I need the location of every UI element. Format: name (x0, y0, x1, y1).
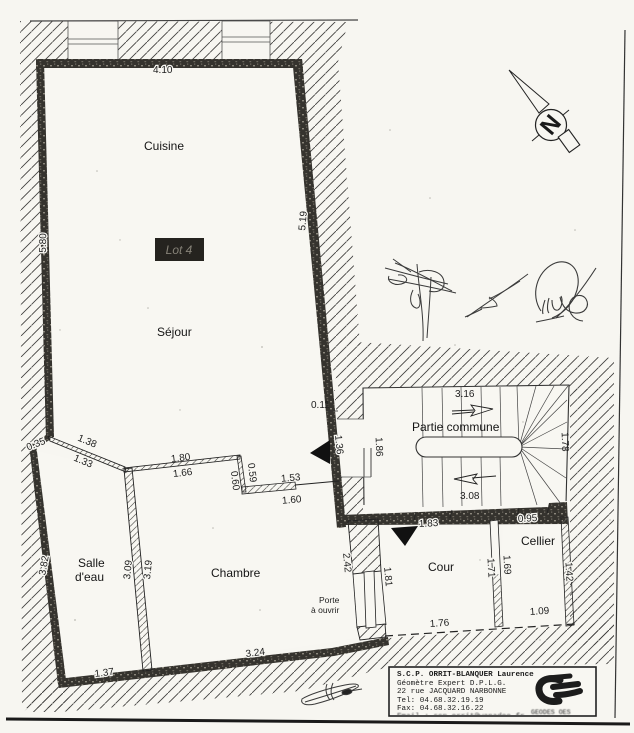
svg-text:1.83: 1.83 (419, 518, 439, 530)
svg-text:Cour: Cour (428, 560, 454, 574)
svg-text:1.09: 1.09 (529, 606, 550, 618)
svg-text:Porte: Porte (319, 595, 340, 605)
svg-text:d'eau: d'eau (75, 570, 104, 584)
svg-text:1.86: 1.86 (373, 437, 385, 457)
svg-text:3.08: 3.08 (460, 491, 480, 502)
svg-text:5.80: 5.80 (38, 233, 49, 253)
svg-text:Tel: 04.68.32.19.19: Tel: 04.68.32.19.19 (397, 697, 484, 705)
svg-text:5.19: 5.19 (297, 210, 310, 231)
svg-text:1.36: 1.36 (332, 434, 345, 455)
svg-text:Cuisine: Cuisine (144, 139, 184, 153)
svg-text:à ouvrir: à ouvrir (311, 605, 340, 615)
svg-text:3.19: 3.19 (142, 559, 155, 580)
svg-text:Lot 4: Lot 4 (166, 243, 193, 257)
svg-text:Fax: 04.68.32.16.22: Fax: 04.68.32.16.22 (397, 705, 484, 713)
svg-text:2.42: 2.42 (340, 553, 353, 574)
svg-text:1.81: 1.81 (381, 567, 394, 588)
svg-text:Partie commune: Partie commune (412, 420, 500, 434)
svg-text:0.11: 0.11 (311, 400, 330, 411)
svg-text:1.71: 1.71 (484, 558, 496, 578)
svg-text:1.60: 1.60 (282, 494, 303, 507)
svg-text:Cellier: Cellier (521, 534, 555, 548)
svg-text:22 rue JACQUARD NARBONNE: 22 rue JACQUARD NARBONNE (397, 688, 507, 696)
svg-text:4.10: 4.10 (153, 65, 173, 76)
svg-text:1.76: 1.76 (429, 618, 450, 630)
svg-text:Géomètre Expert D.P.L.G.: Géomètre Expert D.P.L.G. (397, 680, 506, 688)
svg-text:3.16: 3.16 (455, 389, 475, 400)
svg-text:GEODES OES: GEODES OES (531, 709, 571, 716)
svg-text:S.C.P. ORRIT-BLANQUER Laurence: S.C.P. ORRIT-BLANQUER Laurence (397, 671, 534, 679)
svg-text:Salle: Salle (78, 556, 105, 570)
svg-text:1.78: 1.78 (559, 432, 571, 452)
svg-text:3.09: 3.09 (122, 559, 135, 580)
svg-text:0.95: 0.95 (518, 513, 538, 525)
svg-text:Séjour: Séjour (157, 325, 192, 339)
svg-text:1.69: 1.69 (500, 555, 512, 575)
svg-text:Chambre: Chambre (211, 566, 261, 580)
svg-text:1.53: 1.53 (281, 472, 302, 485)
svg-text:1.42: 1.42 (562, 562, 574, 582)
